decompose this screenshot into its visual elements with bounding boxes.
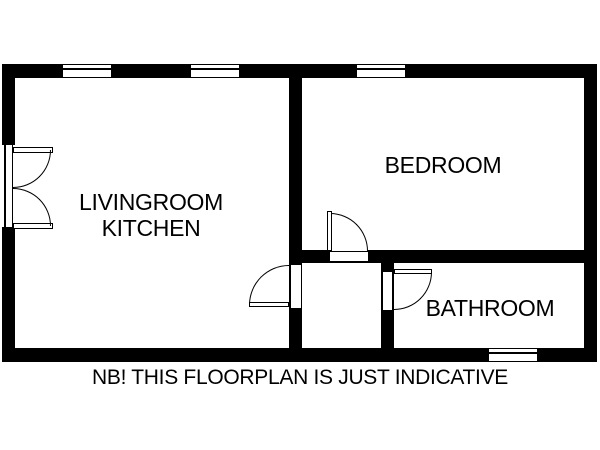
wall-living-divider-lower xyxy=(289,308,302,348)
livingroom-hall-door-swing xyxy=(249,265,289,305)
window-livingroom-right xyxy=(190,64,240,78)
livingroom-kitchen-label: LIVINGROOM KITCHEN xyxy=(41,189,261,241)
window-bedroom xyxy=(356,64,406,78)
wall-bedroom-bathroom-divider xyxy=(368,250,584,263)
window-pane-line xyxy=(357,68,405,70)
bathroom-label: BATHROOM xyxy=(390,295,590,321)
bedroom-door-swing xyxy=(330,213,368,251)
floorplan: LIVINGROOM KITCHEN BEDROOM BATHROOM NB! … xyxy=(0,0,600,450)
window-pane-line xyxy=(63,68,111,70)
entry-double-door-swing-top xyxy=(13,150,51,188)
window-pane-line xyxy=(489,352,537,354)
entry-doorway-jamb-outer xyxy=(4,145,6,227)
livingroom-hall-door-leaf xyxy=(249,302,289,308)
bathroom-door-leaf xyxy=(394,269,432,275)
wall-hall-right-upper xyxy=(381,250,394,272)
livingroom-label-line1: LIVINGROOM xyxy=(41,189,261,215)
bedroom-label: BEDROOM xyxy=(343,152,543,178)
exterior-wall-left-lower xyxy=(2,227,15,362)
wall-hall-top-left xyxy=(302,250,330,263)
living-doorway-jamb-right xyxy=(301,265,303,308)
bedroom-doorway-jamb-bottom xyxy=(330,261,368,263)
bathroom-doorway-jamb-left xyxy=(381,272,383,310)
wall-living-divider-upper xyxy=(289,78,302,265)
living-doorway-jamb-left xyxy=(289,265,291,308)
exterior-wall-left-upper xyxy=(2,64,15,145)
bedroom-door-leaf xyxy=(327,211,333,251)
window-bathroom xyxy=(488,348,538,362)
window-livingroom-left xyxy=(62,64,112,78)
window-pane-line xyxy=(191,68,239,70)
livingroom-label-line2: KITCHEN xyxy=(41,215,261,241)
disclaimer-note: NB! THIS FLOORPLAN IS JUST INDICATIVE xyxy=(0,366,600,390)
